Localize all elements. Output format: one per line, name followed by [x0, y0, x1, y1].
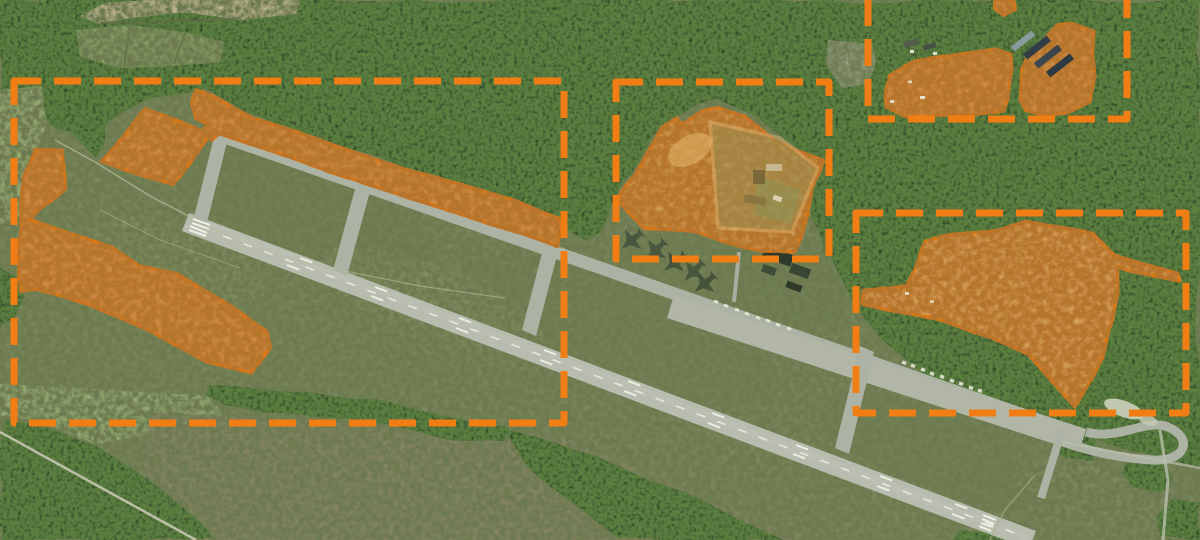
white-structure	[933, 52, 937, 55]
parked-aircraft-row-mark	[766, 320, 770, 322]
parked-aircraft-row-mark	[724, 305, 728, 307]
parked-aircraft-row-mark	[735, 309, 739, 311]
white-structure	[890, 100, 894, 103]
vehicle-row-mark	[902, 362, 906, 364]
parked-aircraft-row-mark	[776, 324, 780, 326]
vehicle-row-mark	[940, 376, 944, 378]
white-structure	[920, 96, 925, 99]
vehicle-row-mark	[921, 369, 925, 371]
parked-aircraft-row-mark	[745, 313, 749, 315]
vehicle-row-mark	[950, 380, 954, 382]
white-structure	[930, 300, 934, 303]
vehicle-row-mark	[930, 373, 934, 375]
parked-aircraft-row-mark	[714, 301, 718, 303]
parked-aircraft-row-mark	[756, 317, 760, 319]
vehicle-row-mark	[911, 365, 915, 367]
vehicle-row-mark	[959, 383, 963, 385]
pentagon-building	[766, 164, 782, 171]
vehicle-row-mark	[978, 390, 982, 392]
vehicle-row-mark	[969, 387, 973, 389]
white-structure	[905, 292, 909, 295]
satellite-image	[0, 0, 1200, 540]
screenshot-root	[0, 0, 1200, 540]
parked-aircraft-row-mark	[787, 328, 791, 330]
white-structure	[910, 50, 914, 53]
pentagon-building	[753, 170, 765, 184]
